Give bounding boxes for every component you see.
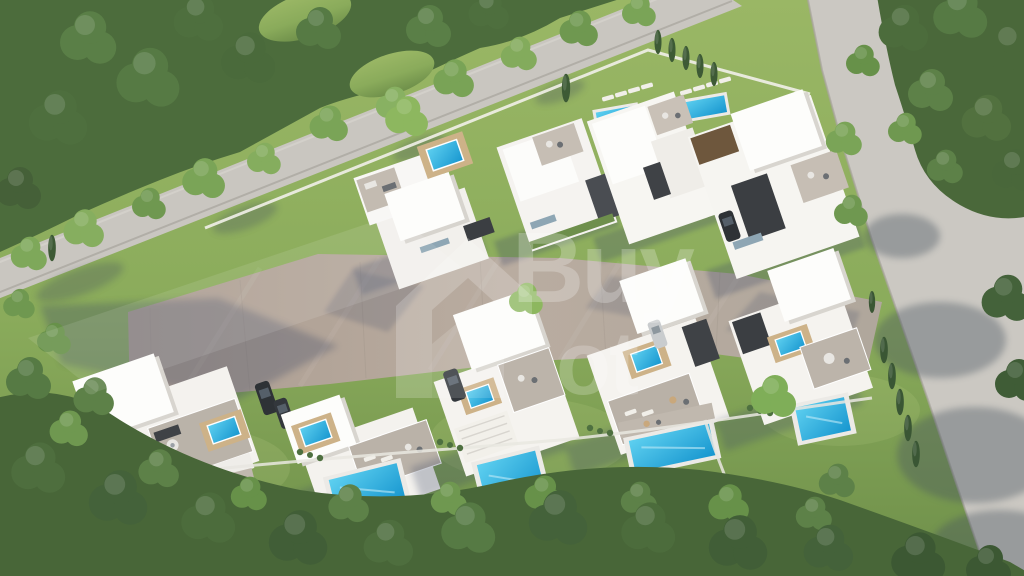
render-canvas: Buy ot xyxy=(0,0,1024,576)
watermark-line1: Buy xyxy=(512,212,695,324)
aerial-villa-render: Buy ot xyxy=(0,0,1024,576)
watermark-line2: ot xyxy=(556,314,638,414)
